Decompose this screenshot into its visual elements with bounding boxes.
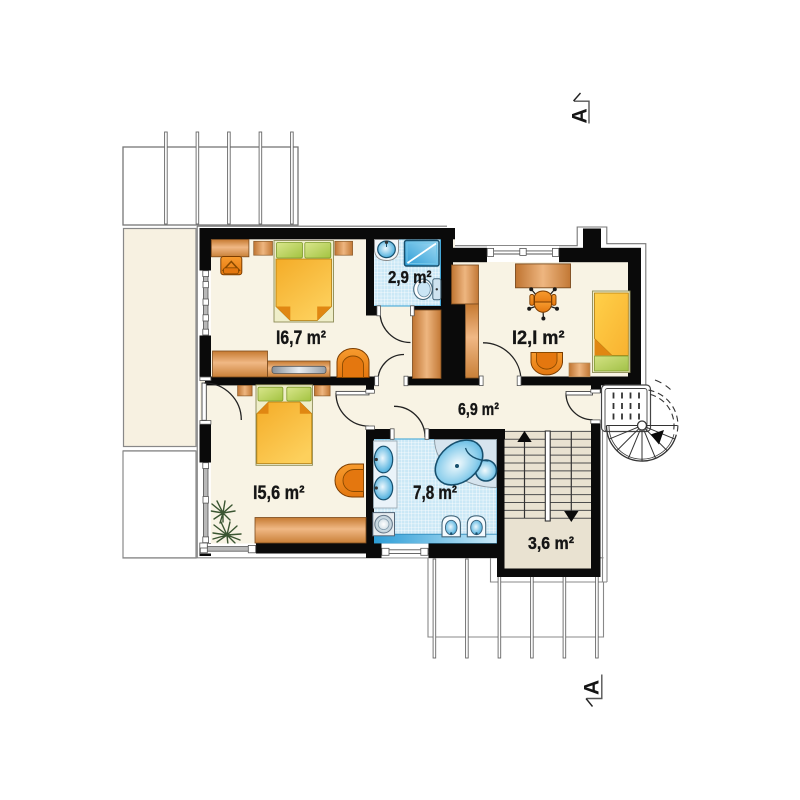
svg-text:A: A [569, 108, 592, 123]
svg-text:6,9 m²: 6,9 m² [458, 399, 499, 419]
svg-text:3,6 m²: 3,6 m² [528, 533, 574, 553]
svg-text:I5,6 m²: I5,6 m² [253, 483, 305, 504]
svg-text:I2,I m²: I2,I m² [512, 328, 565, 349]
svg-text:2,9 m²: 2,9 m² [388, 267, 432, 287]
svg-text:7,8 m²: 7,8 m² [413, 483, 457, 504]
svg-text:I6,7 m²: I6,7 m² [276, 328, 326, 349]
svg-text:A: A [581, 680, 604, 695]
